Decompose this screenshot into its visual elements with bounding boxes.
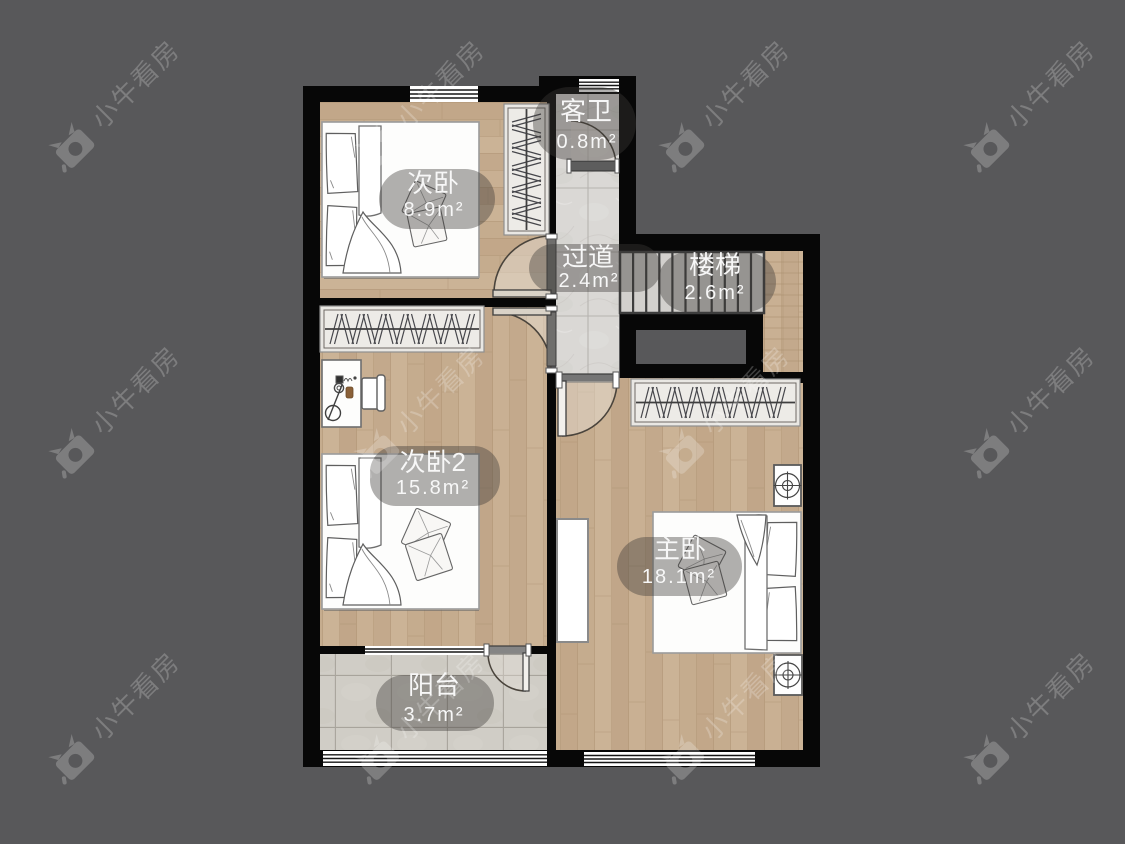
svg-text:2: 2	[452, 447, 466, 477]
svg-text:2.6m²: 2.6m²	[684, 282, 745, 304]
svg-text:15.8m²: 15.8m²	[396, 477, 470, 499]
svg-text:18.1m²: 18.1m²	[642, 566, 716, 588]
svg-text:2.4m²: 2.4m²	[558, 270, 619, 292]
svg-text:0.8m²: 0.8m²	[556, 131, 617, 153]
svg-text:8.9m²: 8.9m²	[403, 199, 464, 221]
svg-text:3.7m²: 3.7m²	[403, 704, 464, 726]
